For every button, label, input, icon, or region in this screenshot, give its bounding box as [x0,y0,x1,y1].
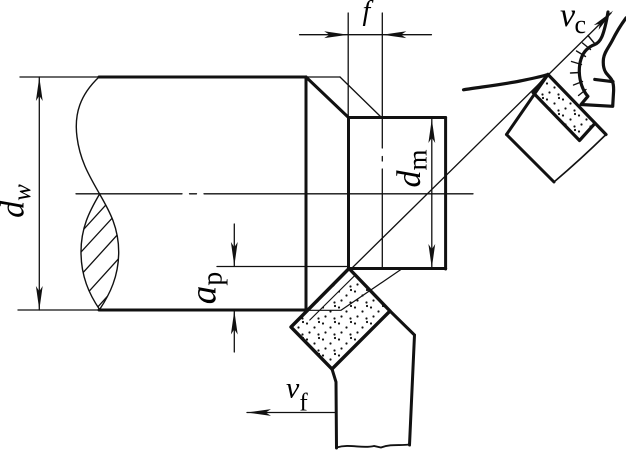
svg-text:vf: vf [286,372,308,417]
svg-text:f: f [363,0,374,27]
svg-text:dm: dm [391,149,433,187]
svg-text:c: c [575,10,587,39]
svg-text:ap: ap [184,272,229,305]
svg-text:dw: dw [0,184,36,218]
